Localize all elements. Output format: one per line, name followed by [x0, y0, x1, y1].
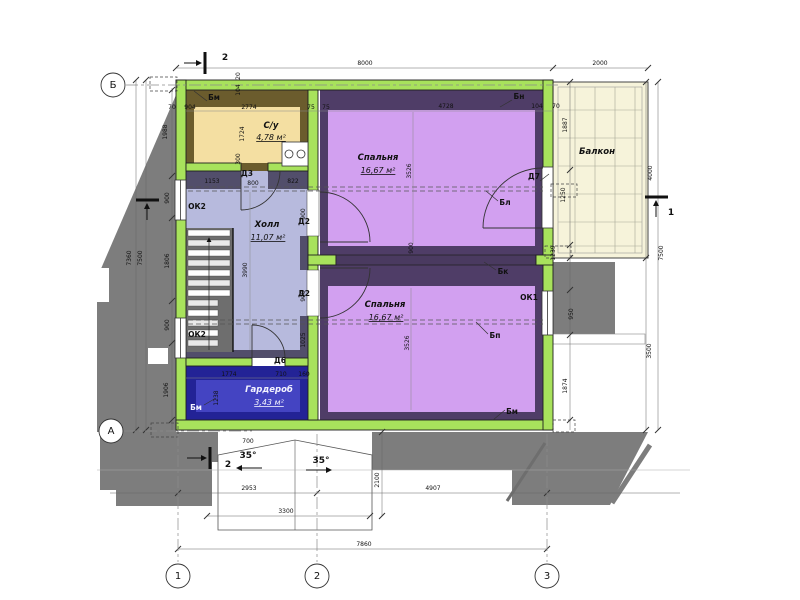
room-area-hall: 11,07 м²	[251, 233, 286, 242]
tag-door-d3: Д3	[241, 169, 253, 178]
dim-ti7: 70	[552, 103, 560, 110]
tag-window-ok2-bottom: ОК2	[188, 330, 206, 339]
room-label-wardrobe: Гардероб	[245, 384, 293, 395]
axis-label-1: 1	[175, 571, 181, 582]
room-bedroom-bottom	[328, 286, 535, 412]
dim-w-160: 160	[298, 371, 310, 378]
dim-top-total: 8000	[357, 60, 372, 67]
door-gap-d2-top	[307, 190, 319, 236]
dim-lc1: 900	[164, 192, 171, 204]
dim-hall-900a: 900	[300, 208, 307, 220]
dim-layer-20: 20	[235, 72, 242, 80]
dim-layer-104: 104	[235, 84, 242, 96]
room-label-bathroom: С/у	[264, 121, 279, 131]
dim-top-balcony: 2000	[592, 60, 607, 67]
dim-lc2: 1806	[164, 253, 171, 268]
dim-hall-1153: 1153	[204, 178, 219, 185]
tag-beam-bm-wardrobe: Бм	[190, 403, 202, 412]
dim-b-3300: 3300	[278, 508, 293, 515]
dim-hall-1025: 1025	[300, 332, 307, 347]
roof-bottom-right	[512, 432, 648, 505]
dim-ti6: 104	[531, 103, 543, 110]
room-label-bedroom-top: Спальня	[358, 153, 399, 163]
roof-left-slot2	[148, 348, 168, 364]
dim-r-3500: 3500	[646, 343, 653, 358]
dim-bb-3526: 3526	[404, 335, 411, 350]
wall-bottom	[176, 420, 553, 430]
dim-lc3: 900	[164, 319, 171, 331]
wall-divider-l	[308, 255, 336, 265]
section-label-2-bottom: 2	[225, 460, 231, 470]
dim-ti1: 904	[184, 104, 196, 111]
dim-b-4907: 4907	[425, 485, 440, 492]
section-label-1-right: 1	[668, 208, 674, 218]
dim-porch-2100: 2100	[374, 472, 381, 487]
dim-w-710: 710	[275, 371, 287, 378]
room-bedroom-top	[328, 110, 535, 246]
dim-rc2: 1239	[550, 245, 557, 260]
slope-label-left: 35°	[239, 451, 256, 461]
tag-beam-bk: Бк	[498, 267, 509, 276]
axis-label-a: А	[108, 426, 115, 437]
section-label-2-top: 2	[222, 53, 228, 63]
room-label-balcony: Балкон	[579, 147, 615, 157]
axis-label-3: 3	[544, 571, 550, 582]
tag-beam-bm-br: Бм	[506, 407, 518, 416]
wall-bath-l	[186, 163, 241, 171]
tag-window-ok2-top: ОК2	[188, 202, 206, 211]
wall-wardrobe-r	[285, 358, 308, 366]
tag-door-d6: Д6	[274, 356, 286, 365]
tag-beam-bl: Бл	[499, 198, 510, 207]
dim-ti5: 4728	[438, 103, 453, 110]
room-area-bathroom: 4,78 м²	[256, 133, 286, 142]
dashbox-corner-br	[553, 420, 575, 432]
dim-ti0: 70	[168, 104, 176, 111]
tag-beam-bp: Бп	[490, 331, 501, 340]
dim-lc4: 1906	[163, 382, 170, 397]
hall-poche-mid	[300, 236, 308, 270]
terrace-ledge	[553, 334, 645, 344]
dim-ti3: 75	[307, 104, 315, 111]
dim-hall-3990: 3990	[242, 262, 249, 277]
dim-w-1774: 1774	[221, 371, 236, 378]
tag-beam-bm-top: Бм	[208, 93, 220, 102]
dim-b-2953: 2953	[241, 485, 256, 492]
axis-label-b: Б	[110, 80, 117, 91]
dim-rc0: 1887	[562, 117, 569, 132]
tag-door-d7: Д7	[528, 172, 540, 181]
dim-bt-900: 900	[408, 242, 415, 254]
wall-wardrobe-l	[186, 358, 252, 366]
wall-divider-mid	[336, 255, 536, 265]
dim-bath-1724: 1724	[239, 126, 246, 141]
dim-hall-822: 822	[287, 178, 299, 185]
dim-rc1: 1250	[560, 187, 567, 202]
dim-rc4: 1874	[562, 378, 569, 393]
dim-b-7860: 7860	[356, 541, 371, 548]
floor-plan-canvas[interactable]: Б А 1 2 3 2 2 1 35° 35° С/у 4,78 м² Спал…	[0, 0, 800, 600]
door-opening-d7	[542, 167, 553, 228]
tag-beam-bn: Бн	[514, 92, 525, 101]
sink-fixture	[282, 142, 308, 166]
wall-left	[176, 80, 186, 430]
dim-porch-700: 700	[242, 438, 254, 445]
dim-hall-800: 800	[247, 180, 259, 187]
roof-under-balcony	[553, 262, 615, 334]
dim-left-7500: 7500	[137, 250, 144, 265]
dim-lc0: 1988	[162, 124, 169, 139]
room-label-hall: Холл	[254, 220, 280, 230]
room-balcony	[553, 82, 648, 258]
dim-rc3: 950	[568, 308, 575, 320]
room-area-wardrobe: 3,43 м²	[254, 398, 284, 407]
roof-left-slot	[95, 268, 109, 302]
axis-label-2: 2	[314, 571, 320, 582]
room-label-bedroom-bottom: Спальня	[365, 300, 406, 310]
dim-r-4000: 4000	[647, 165, 654, 180]
dim-ti4: 75	[322, 104, 330, 111]
slope-label-right: 35°	[312, 456, 329, 466]
roof-bottom-strip-r	[372, 432, 512, 470]
roof-bottom-strip-l	[150, 432, 218, 462]
dim-bt-3526: 3526	[406, 163, 413, 178]
dim-hall-900b: 900	[300, 290, 307, 302]
dim-left-7360: 7360	[126, 250, 133, 265]
dim-r-7500: 7500	[658, 245, 665, 260]
dim-bath-300: 300	[235, 153, 242, 165]
room-area-bedroom-top: 16,67 м²	[361, 166, 396, 175]
room-area-bedroom-bottom: 16,67 м²	[369, 313, 404, 322]
roof-bl-notch	[100, 490, 116, 506]
dim-w-1238: 1238	[213, 390, 220, 405]
tag-window-ok1: ОК1	[520, 293, 538, 302]
dim-ti2: 2774	[241, 104, 256, 111]
floor-plan-drawing: Б А 1 2 3 2 2 1 35° 35° С/у 4,78 м² Спал…	[0, 0, 800, 600]
